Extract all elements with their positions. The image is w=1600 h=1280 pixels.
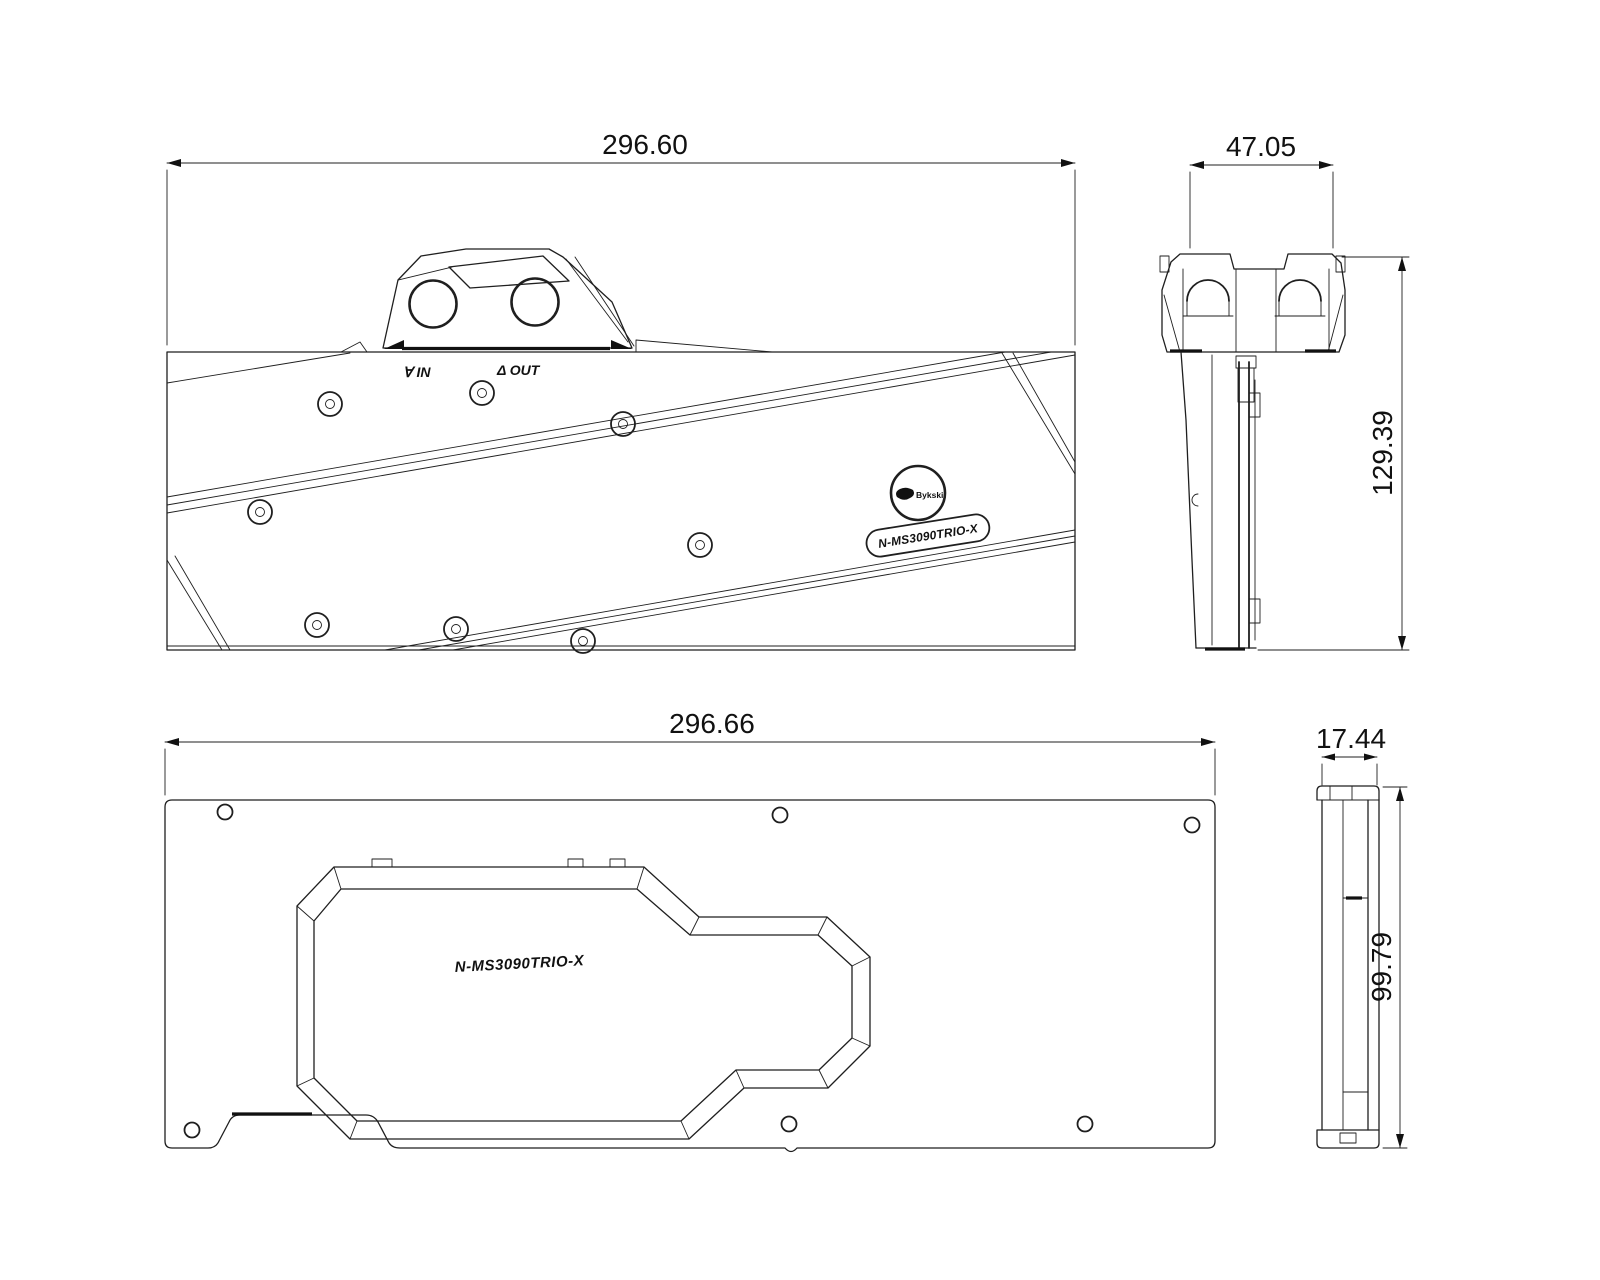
card-side-profile (1181, 352, 1260, 649)
dim-backplate-side-height-text: 99.79 (1366, 932, 1397, 1002)
screw-hole (611, 412, 635, 436)
front-screws (248, 381, 712, 653)
brand-logo: Bykski (891, 466, 945, 520)
port-in-label: ∀ IN (403, 364, 431, 380)
side-view: 47.05 (1160, 131, 1409, 650)
dim-side-width: 47.05 (1190, 131, 1333, 248)
dim-backplate-side-width: 17.44 (1316, 723, 1386, 785)
mount-hole (1078, 1117, 1093, 1132)
screw-hole (305, 613, 329, 637)
backplate-view: 296.66 N-MS3090TRIO-X (165, 708, 1215, 1152)
mount-hole (773, 808, 788, 823)
terminal-block (341, 249, 772, 352)
screw-hole (318, 392, 342, 416)
model-badge-text: N-MS3090TRIO-X (877, 521, 980, 551)
dim-backplate-side-height: 99.79 (1366, 787, 1407, 1148)
brand-logo-icon (896, 488, 914, 500)
top-edge-wedge-left (341, 342, 367, 352)
backplate-side-view: 17.44 99.79 (1316, 723, 1407, 1148)
dim-backplate-side-width-text: 17.44 (1316, 723, 1386, 754)
waterblock-drawing: 296.60 ∀ IN Δ OUT (0, 0, 1600, 1280)
front-view: 296.60 ∀ IN Δ OUT (167, 129, 1075, 653)
screw-hole (470, 381, 494, 405)
mount-hole (782, 1117, 797, 1132)
backplate-holes (185, 805, 1200, 1138)
dim-front-width-text: 296.60 (602, 129, 688, 160)
top-edge-wedge-right (636, 340, 772, 352)
screw-hole (688, 533, 712, 557)
technical-drawing-canvas: 296.60 ∀ IN Δ OUT (0, 0, 1600, 1280)
shroud-stripes (167, 352, 1075, 650)
dim-backplate-width: 296.66 (165, 708, 1215, 795)
dim-side-height-text: 129.39 (1367, 410, 1398, 496)
mount-hole (185, 1123, 200, 1138)
dim-side-width-text: 47.05 (1226, 131, 1296, 162)
port-out-hole (512, 279, 559, 326)
backplate-model-text: N-MS3090TRIO-X (454, 952, 585, 976)
port-in-hole (410, 281, 457, 328)
backplate-outline (165, 800, 1215, 1152)
gpu-block-outline (167, 352, 1075, 650)
screw-hole (248, 500, 272, 524)
dim-backplate-width-text: 296.66 (669, 708, 755, 739)
mount-hole (218, 805, 233, 820)
brand-logo-text: Bykski (916, 490, 943, 500)
port-out-label: Δ OUT (496, 362, 541, 378)
backplate-raised-region (297, 859, 870, 1139)
dim-front-width: 296.60 (167, 129, 1075, 345)
terminal-side (1160, 254, 1345, 352)
mount-hole (1185, 818, 1200, 833)
